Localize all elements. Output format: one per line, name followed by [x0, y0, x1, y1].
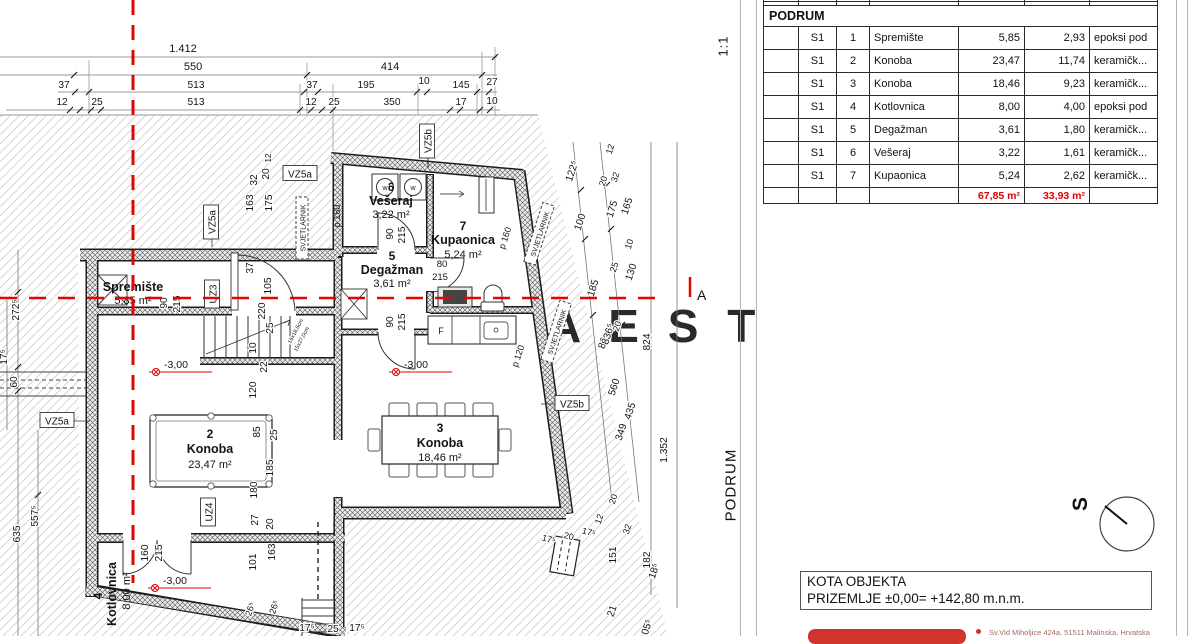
table-cell: 1,61 [1025, 142, 1090, 165]
dimension-label: 10 [418, 76, 430, 87]
dimension-label: 101 [248, 553, 259, 570]
svg-text:-3,00: -3,00 [163, 575, 187, 587]
table-cell: keramičk... [1090, 73, 1158, 96]
table-cell: 5 [837, 119, 870, 142]
frame-line [1176, 0, 1177, 636]
tag-vz5a: VZ5a [40, 413, 74, 428]
svg-text:VZ5a: VZ5a [288, 169, 312, 180]
table-cell: keramičk... [1090, 119, 1158, 142]
dimension-label: 25 [608, 261, 621, 274]
dimension-label: 12 [56, 97, 68, 108]
dimension-label: 25 [328, 97, 340, 108]
tag-p-160: p 160 [332, 205, 342, 228]
dimension-label: 10 [486, 96, 498, 107]
table-cell: Kupaonica [870, 165, 959, 188]
dimension-label: 635 [12, 525, 23, 542]
table-cell [764, 142, 799, 165]
elevation-note-value: PRIZEMLJE ±0,00= +142,80 m.n.m. [807, 590, 1151, 607]
table-stub [798, 0, 799, 5]
table-cell: 4,00 [1025, 96, 1090, 119]
table-cell [799, 188, 837, 204]
room-label-kotlovnica-area: 8,00 m² [121, 572, 133, 610]
table-cell: 33,93 m² [1025, 188, 1090, 204]
tag-vz5b: VZ5b [420, 124, 435, 158]
dimension-label: 27 [250, 514, 261, 526]
room-label-konoba3-num: 3 [437, 421, 444, 435]
dimension-label: 80 [437, 259, 448, 270]
dimension-label: 17⁵ [299, 623, 315, 634]
table-title: PODRUM [764, 6, 1158, 27]
dimension-label: 25 [269, 429, 280, 441]
dimension-label: 10 [623, 238, 636, 251]
dimension-label: 163 [245, 194, 256, 211]
dimension-label: 145 [453, 80, 470, 91]
table-cell: 8,00 [959, 96, 1025, 119]
dimension-label: 160 [140, 544, 151, 561]
dimension-label: 37 [306, 80, 318, 91]
tag-uz4: UZ4 [201, 498, 216, 526]
dimension-label: 90 [385, 316, 396, 328]
svg-text:UZ3: UZ3 [208, 284, 219, 303]
dimension-label: 25 [327, 624, 339, 635]
frame-line [1187, 0, 1188, 636]
room-label-veseraj-name: Vešeraj [369, 194, 413, 208]
table-cell [870, 188, 959, 204]
dimension-label: 557⁵ [30, 505, 41, 526]
dimension-label: 25 [265, 322, 276, 334]
dimension-label: 122⁵ [564, 159, 581, 183]
dimension-label: 60 [9, 376, 20, 388]
level-title: PODRUM [723, 449, 740, 522]
room-label-degazman-num: 5 [389, 249, 396, 263]
elevation-note-box: KOTA OBJEKTA PRIZEMLJE ±0,00= +142,80 m.… [800, 571, 1152, 610]
dimension-label: 220 [257, 302, 268, 319]
dimension-label: 90 [385, 228, 396, 240]
frame-line [756, 0, 757, 636]
table-row: S14Kotlovnica8,004,00epoksi pod [764, 96, 1158, 119]
table-row: S16Vešeraj3,221,61keramičk... [764, 142, 1158, 165]
dimension-label: 151 [608, 546, 619, 563]
svg-text:VZ5a: VZ5a [207, 210, 218, 234]
table-cell: S1 [799, 73, 837, 96]
compass-letter: S [1069, 497, 1093, 511]
dimension-label: 25 [91, 97, 103, 108]
dimension-label: 215 [397, 313, 408, 330]
table-cell: Konoba [870, 50, 959, 73]
table-cell [764, 73, 799, 96]
room-label-kupaonica-num: 7 [460, 219, 467, 233]
table-row: 67,85 m²33,93 m² [764, 188, 1158, 204]
room-label-degazman-name: Degažman [361, 263, 424, 277]
table-cell: 23,47 [959, 50, 1025, 73]
table-cell: 2,62 [1025, 165, 1090, 188]
table-cell: S1 [799, 27, 837, 50]
room-label-konoba2-area: 23,47 m² [188, 459, 232, 471]
frame-line [740, 0, 741, 636]
table-cell: 67,85 m² [959, 188, 1025, 204]
dimension-label: 100 [573, 212, 589, 232]
dimension-label: 513 [188, 80, 205, 91]
tag-vz5a: VZ5a [204, 205, 219, 239]
dimension-label: 12 [305, 97, 317, 108]
dimension-label: 824 [642, 333, 653, 350]
fridge-label: F [438, 326, 444, 336]
table-cell: 1,80 [1025, 119, 1090, 142]
dimension-label: 17⁵ [0, 349, 10, 365]
dimension-label: 550 [184, 61, 202, 73]
dimension-label: 37 [58, 80, 70, 91]
compass-needle [1105, 506, 1127, 524]
dimension-label: 414 [381, 61, 399, 73]
table-cell: 5,24 [959, 165, 1025, 188]
table-cell: epoksi pod [1090, 96, 1158, 119]
table-cell: S1 [799, 96, 837, 119]
dimension-label: 17 [455, 97, 467, 108]
table-stub [1157, 0, 1158, 5]
dimension-label: w [409, 185, 416, 192]
dimension-label: 12 [264, 153, 273, 162]
dimension-label: 105 [263, 277, 274, 294]
room-label-veseraj-area: 3,22 m² [372, 209, 410, 221]
table-cell: keramičk... [1090, 165, 1158, 188]
table-cell: Kotlovnica [870, 96, 959, 119]
dimension-label: 560 [607, 377, 623, 397]
table-stub [1024, 0, 1025, 5]
room-label-kotlovnica-num: 4 [91, 592, 105, 599]
scale-label: 1:1 [716, 35, 731, 56]
table-stub [869, 0, 870, 5]
room-label-konoba3-name: Konoba [417, 436, 465, 450]
table-cell: S1 [799, 50, 837, 73]
table-cell: 4 [837, 96, 870, 119]
dimension-label: 1.352 [659, 437, 670, 463]
table-stub [836, 0, 837, 5]
dimension-label: 185 [265, 459, 276, 476]
north-compass [1095, 492, 1161, 558]
table-cell: 5,85 [959, 27, 1025, 50]
table-cell [764, 96, 799, 119]
dimension-label: 37 [245, 262, 256, 274]
table-cell: S1 [799, 119, 837, 142]
table-cell: 11,74 [1025, 50, 1090, 73]
room-label-kupaonica-area: 5,24 m² [444, 249, 482, 261]
dimension-label: 215 [397, 226, 408, 243]
table-cell: Degažman [870, 119, 959, 142]
tag-vz5b: VZ5b [555, 396, 589, 411]
room-label-konoba2-name: Konoba [187, 442, 235, 456]
dimension-label: 32 [609, 171, 622, 184]
table-cell: S1 [799, 165, 837, 188]
table-cell: 3 [837, 73, 870, 96]
table-cell: 3,61 [959, 119, 1025, 142]
dimension-label: 10 [248, 342, 259, 354]
table-cell: Spremište [870, 27, 959, 50]
table-row: S11Spremište5,852,93epoksi pod [764, 27, 1158, 50]
company-logo [808, 629, 966, 644]
table-row: S13Konoba18,469,23keramičk... [764, 73, 1158, 96]
dimension-label: 175 [264, 194, 275, 211]
table-cell: epoksi pod [1090, 27, 1158, 50]
room-label-konoba2-num: 2 [207, 427, 214, 441]
table-cell: 7 [837, 165, 870, 188]
table-cell: 1 [837, 27, 870, 50]
svg-text:-3,00: -3,00 [164, 359, 188, 371]
svg-text:p 160: p 160 [332, 205, 342, 228]
tag-vz5a: VZ5a [283, 166, 317, 181]
svg-text:VZ5a: VZ5a [45, 416, 69, 427]
table-cell: Konoba [870, 73, 959, 96]
table-cell [764, 188, 799, 204]
svg-text:-3,00: -3,00 [404, 359, 428, 371]
room-label-veseraj-num: 6 [388, 180, 395, 194]
dimension-label: 130 [624, 262, 640, 282]
dimension-label: 120 [248, 381, 259, 398]
table-cell [764, 165, 799, 188]
table-cell: 18,46 [959, 73, 1025, 96]
dimension-label: 215 [432, 272, 448, 283]
table-cell [1090, 188, 1158, 204]
table-cell [764, 119, 799, 142]
table-cell: 9,23 [1025, 73, 1090, 96]
floorplan-drawing: A E S T A T E [0, 0, 757, 636]
tag-uz3: UZ3 [205, 280, 220, 308]
dimension-label: 27 [486, 77, 498, 88]
dimension-label: 272⁵ [11, 299, 22, 320]
table-cell: 2,93 [1025, 27, 1090, 50]
table-header-row: PODRUM [764, 6, 1158, 27]
table-row: S17Kupaonica5,242,62keramičk... [764, 165, 1158, 188]
svg-text:SVJETLARNIK: SVJETLARNIK [300, 204, 307, 251]
room-schedule-table: PODRUM S11Spremište5,852,93epoksi podS12… [763, 5, 1158, 204]
dimension-label: 215 [154, 544, 165, 561]
floorplan-page: { "scale": {"label": "1:1"}, "side_title… [0, 0, 1200, 636]
dimension-label: 20 [597, 175, 610, 188]
dimension-label: 180 [249, 481, 260, 498]
table-cell: keramičk... [1090, 50, 1158, 73]
table-cell [764, 50, 799, 73]
dimension-label: 22 [259, 361, 270, 373]
table-stub [1089, 0, 1090, 5]
room-label-kotlovnica-name: Kotlovnica [105, 561, 119, 626]
svg-text:VZ5b: VZ5b [560, 399, 584, 410]
dimension-label: 1.412 [169, 43, 197, 55]
table-cell: Vešeraj [870, 142, 959, 165]
dimension-label: 350 [384, 97, 401, 108]
table-cell: 3,22 [959, 142, 1025, 165]
table-row: S15Degažman3,611,80keramičk... [764, 119, 1158, 142]
table-cell: S1 [799, 142, 837, 165]
dimension-label: 20 [261, 168, 272, 180]
section-marker-label: A [697, 287, 707, 303]
svg-text:VZ5b: VZ5b [423, 129, 434, 153]
table-cell [837, 188, 870, 204]
svg-text:UZ4: UZ4 [204, 502, 215, 521]
table-top-rule [763, 1, 1157, 2]
table-stub [958, 0, 959, 5]
dimension-label: 20 [265, 518, 276, 530]
dimension-label: 435 [623, 401, 639, 421]
table-row: S12Konoba23,4711,74keramičk... [764, 50, 1158, 73]
dimension-label: 175 [605, 199, 621, 219]
dimension-label: 195 [358, 80, 375, 91]
table-stub [763, 0, 764, 5]
table-cell: 6 [837, 142, 870, 165]
dimension-label: 165 [620, 196, 636, 216]
dimension-label: 17⁵ [349, 623, 365, 634]
table-cell: 2 [837, 50, 870, 73]
dimension-label: 513 [188, 97, 205, 108]
dimension-label: 163 [267, 543, 278, 560]
dimension-label: 32 [249, 174, 260, 186]
room-label-degazman-area: 3,61 m² [373, 278, 411, 290]
table-cell [764, 27, 799, 50]
dimension-label: 85 [252, 426, 263, 438]
table-cell: keramičk... [1090, 142, 1158, 165]
dimension-label: 12 [604, 143, 617, 156]
tag-svjetlarnik: SVJETLARNIK [296, 197, 308, 259]
logo-dot-icon [976, 629, 981, 634]
dimension-label: w [381, 185, 388, 192]
room-label-konoba3-area: 18,46 m² [418, 452, 462, 464]
room-label-kupaonica-name: Kupaonica [431, 233, 496, 247]
dimension-label: 349 [614, 422, 630, 442]
elevation-note-title: KOTA OBJEKTA [807, 573, 1151, 590]
